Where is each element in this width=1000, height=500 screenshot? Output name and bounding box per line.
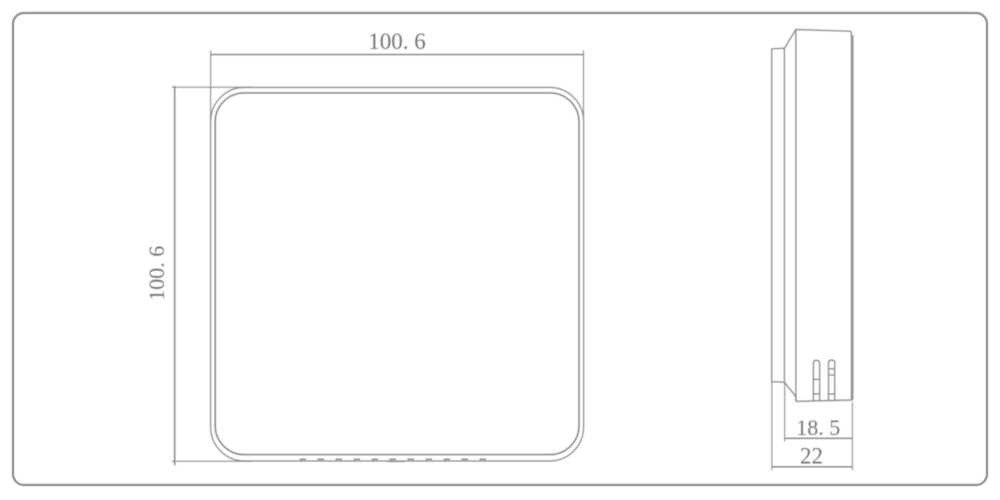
svg-text:22: 22 [800, 443, 823, 468]
svg-text:100. 6: 100. 6 [144, 246, 169, 301]
svg-text:18. 5: 18. 5 [796, 415, 840, 440]
svg-text:100. 6: 100. 6 [368, 29, 426, 54]
